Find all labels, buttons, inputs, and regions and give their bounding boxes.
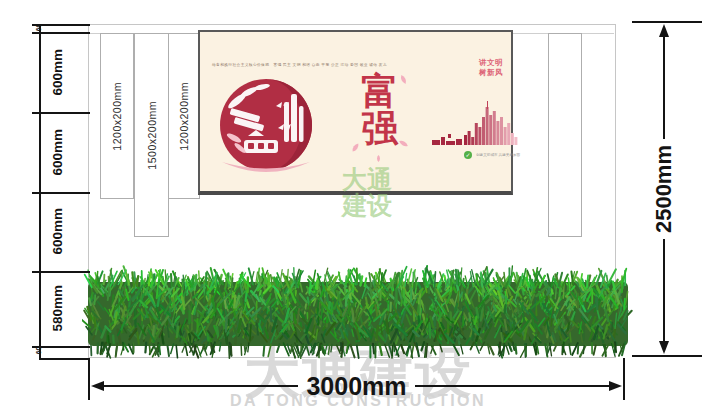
side-panel-right <box>548 33 582 237</box>
height-dimension: 2500mm <box>630 20 704 360</box>
dim-label-600-3: 600mm <box>44 192 70 271</box>
petal-decoration <box>351 143 359 151</box>
arrow-down-icon <box>659 341 669 354</box>
core-values-caption: 培育和践行社会主义核心价值观 富强 民主 文明 和谐 自由 平等 公正 法治 爱… <box>212 62 387 68</box>
arrow-left-icon <box>91 381 104 391</box>
side-panel-3: 1200x200mm <box>168 33 200 199</box>
panel-size-label: 1200x200mm <box>111 82 123 151</box>
theme-characters: 富 强 <box>357 73 403 147</box>
signage-drawing: 1200x200mm 1500x200mm 1200x200mm 培育和践行社会… <box>0 0 720 420</box>
theme-char-top: 富 <box>357 73 403 110</box>
watermark-center: 大通 建设 <box>338 166 396 218</box>
panel-size-label: 1500x200mm <box>146 101 158 170</box>
hedge-plants <box>82 262 634 362</box>
dim-label-600-2: 600mm <box>44 112 70 192</box>
height-dimension-label: 2500mm <box>651 145 677 233</box>
city-skyline-graphic <box>432 100 518 148</box>
left-dimension-chain: 60 600mm 600mm 600mm 580mm 60 <box>30 24 90 404</box>
civility-slogan: 讲文明 树新风 <box>479 58 503 77</box>
arrow-right-icon <box>609 381 622 391</box>
poster-footer-caption: 创建文明城市 共建美好家园 <box>476 152 520 157</box>
panel-size-label: 1200x200mm <box>178 82 190 151</box>
width-dimension: 3000mm <box>88 356 625 402</box>
theme-char-bottom: 强 <box>357 110 403 147</box>
leaf-badge-icon: ✓ <box>464 151 472 159</box>
arrow-up-icon <box>659 24 669 37</box>
extension-line <box>623 358 625 400</box>
dim-label-60-top: 60 <box>31 22 45 34</box>
petal-decoration <box>375 155 382 162</box>
side-panel-1: 1200x200mm <box>100 33 134 199</box>
dim-label-580: 580mm <box>44 271 70 346</box>
dim-label-60-bottom: 60 <box>31 345 45 357</box>
width-dimension-label: 3000mm <box>298 372 414 401</box>
dim-label-600-1: 600mm <box>44 32 70 112</box>
dimension-corner <box>39 358 88 360</box>
papercut-circle-art <box>218 76 314 180</box>
side-panel-2: 1500x200mm <box>134 33 169 237</box>
extension-line <box>88 358 90 400</box>
